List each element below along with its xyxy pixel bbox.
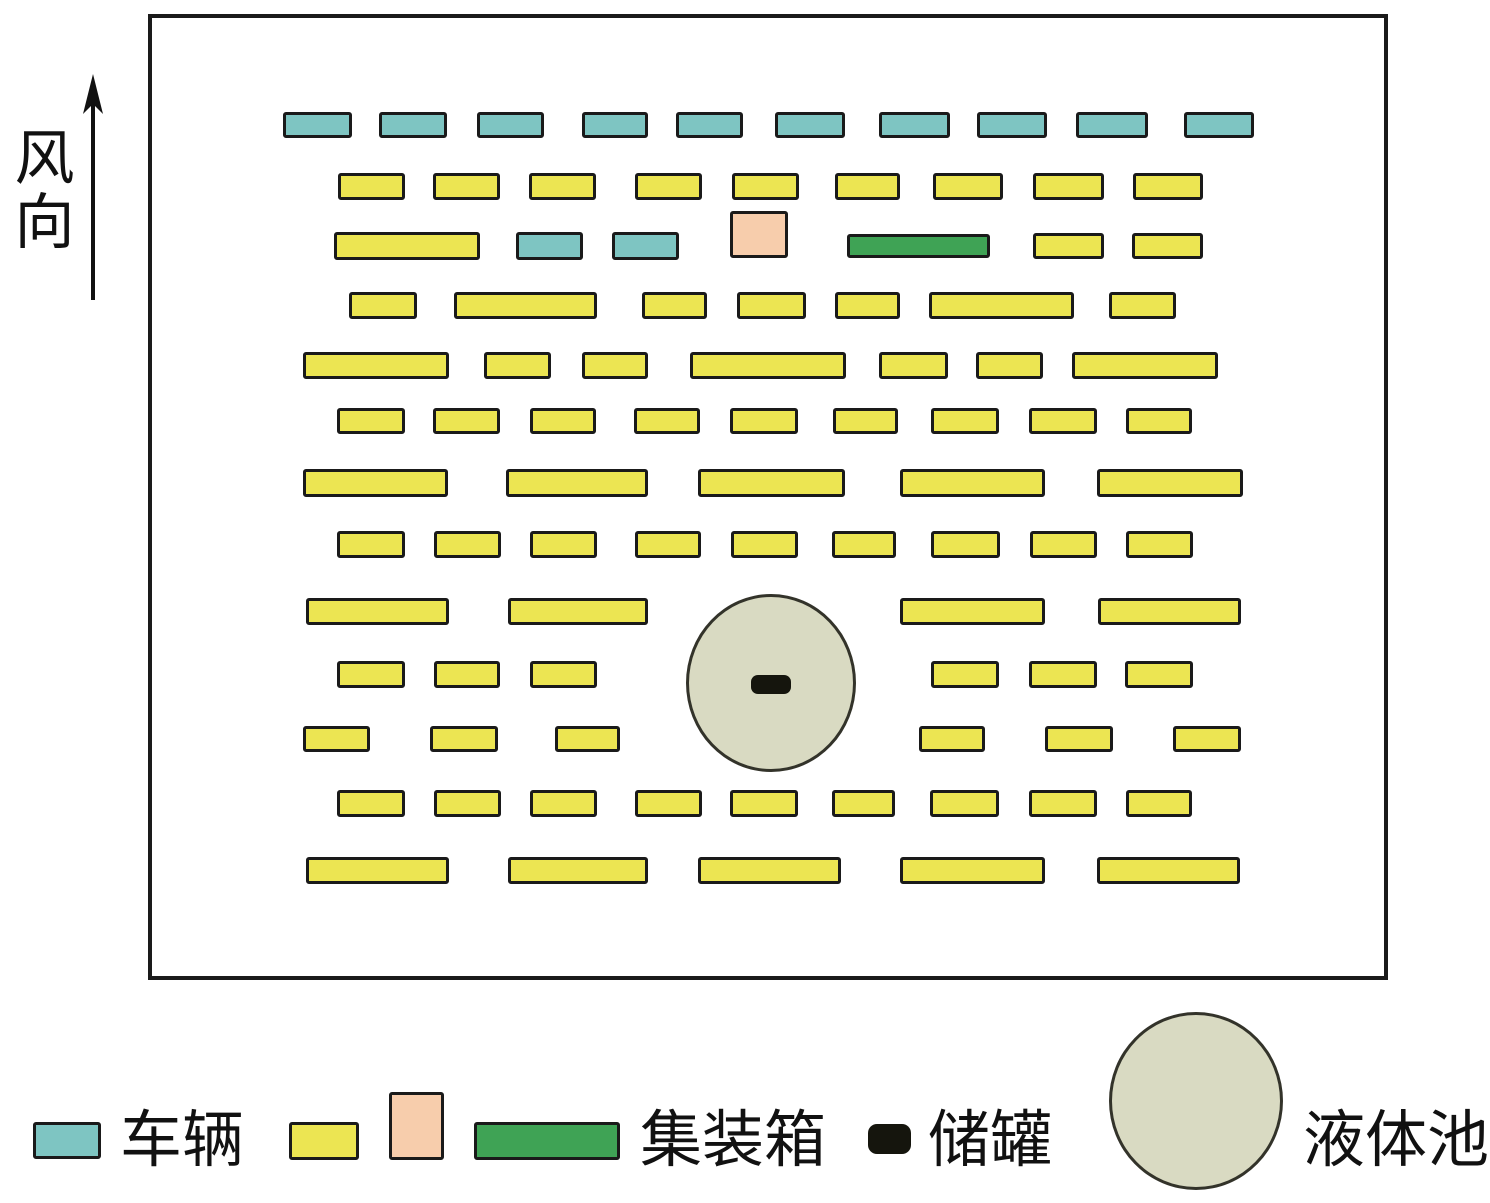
container-rect [919,726,985,752]
container-rect [730,408,798,434]
container-rect [1098,598,1241,625]
container-rect [929,292,1074,319]
vehicle-rect [775,112,845,138]
container-rect [530,531,597,558]
container-rect [530,408,596,434]
container-rect [434,661,500,688]
vehicle-rect [612,232,679,260]
container-rect [1109,292,1176,319]
container-rect [303,726,370,752]
container-rect [1033,233,1104,259]
container-rect [690,352,846,379]
container-green-rect [847,234,990,258]
container-rect [506,469,648,497]
vehicle-rect [977,112,1047,138]
legend-container-green-swatch [474,1122,620,1160]
container-rect [634,408,700,434]
container-rect [730,790,798,817]
vehicle-rect [477,112,544,138]
container-rect [930,790,999,817]
container-rect [337,790,405,817]
container-rect [835,292,900,319]
container-rect [900,857,1045,884]
container-rect [933,173,1003,200]
container-rect [306,857,449,884]
vehicle-rect [676,112,743,138]
legend-vehicle-label: 车辆 [120,1102,244,1178]
container-rect [1126,790,1192,817]
container-rect [433,173,500,200]
container-rect [303,352,449,379]
container-rect [306,598,449,625]
wind-arrow-icon [74,72,114,304]
container-rect [635,531,701,558]
container-rect [1126,408,1192,434]
legend-pool-label: 液体池 [1303,1102,1489,1178]
container-rect [976,352,1043,379]
site-layout-figure: 风向 车辆 集装箱 储罐 液体池 [0,0,1490,1203]
vehicle-rect [1184,112,1254,138]
container-rect [1033,173,1104,200]
container-rect [1097,857,1240,884]
vehicle-rect [516,232,583,260]
container-rect [434,531,501,558]
container-rect [1029,408,1097,434]
container-rect [334,232,480,260]
container-rect [555,726,620,752]
container-rect [635,790,702,817]
legend-container-label: 集装箱 [640,1102,826,1178]
container-rect [1097,469,1243,497]
container-rect [508,857,648,884]
container-rect [1126,531,1193,558]
container-rect [484,352,551,379]
container-rect [454,292,597,319]
container-rect [731,531,798,558]
yard-boundary [148,14,1388,980]
container-rect [900,598,1045,625]
container-rect [582,352,648,379]
container-rect [337,408,405,434]
container-rect [1030,531,1097,558]
container-rect [338,173,405,200]
container-rect [635,173,702,200]
container-rect [931,408,999,434]
legend-tank-swatch [868,1124,911,1154]
container-rect [303,469,448,497]
vehicle-rect [582,112,648,138]
container-rect [337,531,405,558]
container-rect [835,173,900,200]
container-rect [433,408,500,434]
container-pink-rect [730,211,788,258]
vehicle-rect [1076,112,1148,138]
storage-tank [751,675,791,694]
container-rect [832,531,896,558]
container-rect [1045,726,1113,752]
container-rect [698,857,841,884]
container-rect [1133,173,1203,200]
container-rect [1072,352,1218,379]
wind-direction-label: 风向 [8,126,70,254]
container-rect [832,790,895,817]
container-rect [879,352,948,379]
container-rect [337,661,405,688]
container-rect [530,661,597,688]
legend-tank-label: 储罐 [928,1102,1052,1178]
legend-container-pink-swatch [389,1092,444,1160]
container-rect [434,790,501,817]
container-rect [900,469,1045,497]
container-rect [931,531,1000,558]
container-rect [1029,661,1097,688]
legend-container-yellow-swatch [289,1122,359,1160]
container-rect [1132,233,1203,259]
container-rect [508,598,648,625]
vehicle-rect [283,112,352,138]
legend-vehicle-swatch [33,1122,101,1159]
vehicle-rect [879,112,950,138]
container-rect [931,661,999,688]
container-rect [349,292,417,319]
legend-pool-swatch [1109,1012,1283,1190]
container-rect [430,726,498,752]
container-rect [1125,661,1193,688]
container-rect [1173,726,1241,752]
container-rect [833,408,898,434]
container-rect [529,173,596,200]
container-rect [530,790,597,817]
container-rect [642,292,707,319]
container-rect [698,469,845,497]
container-rect [732,173,799,200]
vehicle-rect [379,112,447,138]
container-rect [1029,790,1097,817]
container-rect [737,292,806,319]
